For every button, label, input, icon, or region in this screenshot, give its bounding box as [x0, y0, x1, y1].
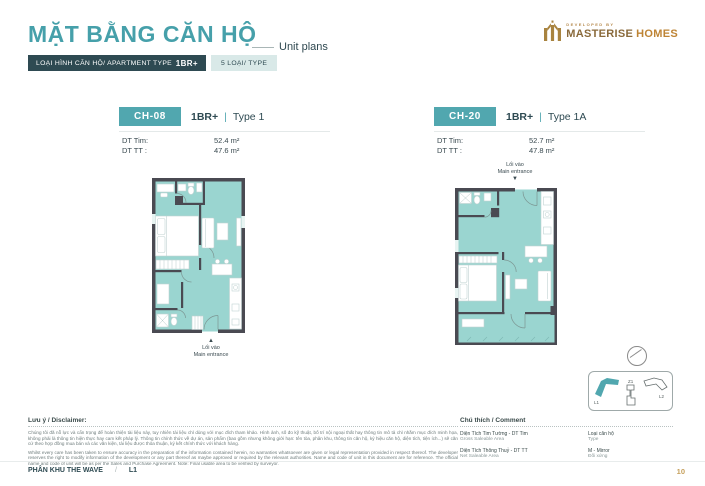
area-gross-label: DT Tim: [122, 136, 214, 146]
legend-item: M - Mirror Đối xứng [588, 448, 673, 460]
unit-type-value: 1BR+ [506, 111, 533, 123]
unit-areas: DT Tim: 52.7 m² DT TT : 47.8 m² [434, 136, 645, 155]
compass-icon [626, 345, 648, 367]
tv-cabinet [506, 275, 511, 299]
unit-type: 1BR+ | Type 1 [191, 111, 264, 123]
footer-divider [0, 461, 705, 462]
legend-title: Chú thích / Comment [460, 417, 673, 427]
area-row-net: DT TT : 47.8 m² [437, 146, 645, 156]
legend-grid: Diện Tích Tim Tường - DT Tim Gross Salea… [460, 431, 673, 460]
unit-header: CH-08 1BR+ | Type 1 [119, 107, 330, 132]
area-gross-value: 52.7 m² [529, 136, 554, 146]
footer-breadcrumb: PHÂN KHU THE WAVE / L1 [28, 467, 137, 474]
page-title: MẶT BẰNG CĂN HỘ [28, 21, 257, 48]
unit-variant: Type 1A [548, 111, 587, 123]
apartment-type-bar: LOẠI HÌNH CĂN HỘ/ APARTMENT TYPE 1BR+ 5 … [28, 55, 277, 71]
keyplan-building-l1 [595, 378, 619, 397]
apartment-type-count: 5 LOẠI/ TYPE [211, 55, 277, 71]
footer-block: L1 [129, 467, 137, 474]
unit-type-separator: | [224, 111, 227, 123]
kitchen-island [525, 246, 547, 257]
sink [484, 193, 491, 201]
legend-item: Loại căn hộ Type [588, 431, 673, 443]
desk [157, 184, 174, 192]
sink [178, 184, 186, 191]
logo-developed-by: DEVELOPED BY [566, 22, 678, 27]
entry-closet [192, 316, 203, 330]
unit-variant: Type 1 [233, 111, 265, 123]
unit-card-ch08: CH-08 1BR+ | Type 1 DT Tim: 52.4 m² DT T… [119, 107, 330, 155]
legend: Chú thích / Comment Diện Tích Tim Tường … [460, 417, 673, 460]
entrance-label-vi: Lối vào [164, 345, 258, 352]
apartment-type-bar-dark: LOẠI HÌNH CĂN HỘ/ APARTMENT TYPE 1BR+ [28, 55, 206, 71]
entrance-label-vi: Lối vào [468, 162, 562, 169]
cabinet [157, 284, 169, 304]
area-row-gross: DT Tim: 52.4 m² [122, 136, 330, 146]
wardrobe [459, 256, 497, 263]
footer-zone: PHÂN KHU THE WAVE [28, 467, 103, 474]
kitchen-island [212, 264, 232, 275]
entrance-arrow-down-icon: ▼ [468, 176, 562, 183]
logo-brand-primary: MASTERISE [566, 28, 633, 40]
balcony-bench [462, 319, 484, 327]
area-net-value: 47.8 m² [529, 146, 554, 156]
logo-brand-secondary: HOMES [636, 28, 678, 40]
area-row-net: DT TT : 47.6 m² [122, 146, 330, 156]
page-subtitle: Unit plans [252, 41, 328, 53]
unit-type-separator: | [539, 111, 542, 123]
chair [161, 193, 168, 197]
disclaimer-text-vi: Chúng tôi đã nỗ lực và cẩn trọng để hoàn… [28, 430, 458, 447]
masterise-homes-logo: DEVELOPED BY MASTERISEHOMES [544, 20, 678, 41]
area-net-value: 47.6 m² [214, 146, 239, 156]
subtitle-dash [252, 47, 274, 48]
area-net-label: DT TT : [437, 146, 529, 156]
keyplan-building-l2 [644, 378, 667, 390]
page-number: 10 [677, 467, 685, 476]
footer-separator: / [115, 467, 117, 474]
apartment-type-value: 1BR+ [176, 59, 198, 68]
unit-type: 1BR+ | Type 1A [506, 111, 586, 123]
unit-code-badge: CH-20 [434, 107, 496, 126]
entrance-label-ch08: ▲ Lối vào Main entrance [164, 338, 258, 359]
tv-cabinet [237, 218, 242, 246]
disclaimer-text-en: Whilst every care has been taken to ensu… [28, 450, 458, 467]
logo-brand: MASTERISEHOMES [566, 28, 678, 40]
entrance-label-en: Main entrance [468, 169, 562, 176]
legend-item: Diện Tích Thông Thuỷ - DT TT Net Saleabl… [460, 448, 588, 460]
area-gross-label: DT Tim: [437, 136, 529, 146]
toilet [474, 196, 480, 204]
unit-type-value: 1BR+ [191, 111, 218, 123]
sofa [202, 218, 214, 248]
floor-plan-ch08 [152, 178, 245, 333]
key-plan-map: L1 Z1 L2 [589, 372, 672, 410]
area-row-gross: DT Tim: 52.7 m² [437, 136, 645, 146]
masterise-logo-icon [544, 20, 561, 41]
entrance-arrow-up-icon: ▲ [164, 338, 258, 345]
sofa [538, 271, 551, 301]
legend-item: Diện Tích Tim Tường - DT Tim Gross Salea… [460, 431, 588, 443]
area-gross-value: 52.4 m² [214, 136, 239, 146]
unit-code-badge: CH-08 [119, 107, 181, 126]
floor-plan-ch20 [455, 188, 557, 345]
unit-header: CH-20 1BR+ | Type 1A [434, 107, 645, 132]
entrance-label-en: Main entrance [164, 352, 258, 359]
unit-card-ch20: CH-20 1BR+ | Type 1A DT Tim: 52.7 m² DT … [434, 107, 645, 155]
area-net-label: DT TT : [122, 146, 214, 156]
entrance-label-ch20: Lối vào Main entrance ▼ [468, 162, 562, 183]
disclaimer-title: Lưu ý / Disclaimer: [28, 417, 458, 427]
key-plan: L1 Z1 L2 [588, 371, 673, 411]
unit-areas: DT Tim: 52.4 m² DT TT : 47.6 m² [119, 136, 330, 155]
keyplan-label-z1: Z1 [628, 379, 634, 384]
toilet [188, 187, 194, 195]
coffee-table [217, 223, 228, 240]
keyplan-label-l2: L2 [659, 394, 665, 399]
disclaimer: Lưu ý / Disclaimer: Chúng tôi đã nỗ lực … [28, 417, 458, 466]
keyplan-building-z1 [627, 385, 635, 405]
page-subtitle-text: Unit plans [279, 41, 328, 53]
apartment-type-label: LOẠI HÌNH CĂN HỘ/ APARTMENT TYPE [36, 60, 172, 67]
keyplan-label-l1: L1 [594, 400, 600, 405]
coffee-table [515, 279, 527, 289]
